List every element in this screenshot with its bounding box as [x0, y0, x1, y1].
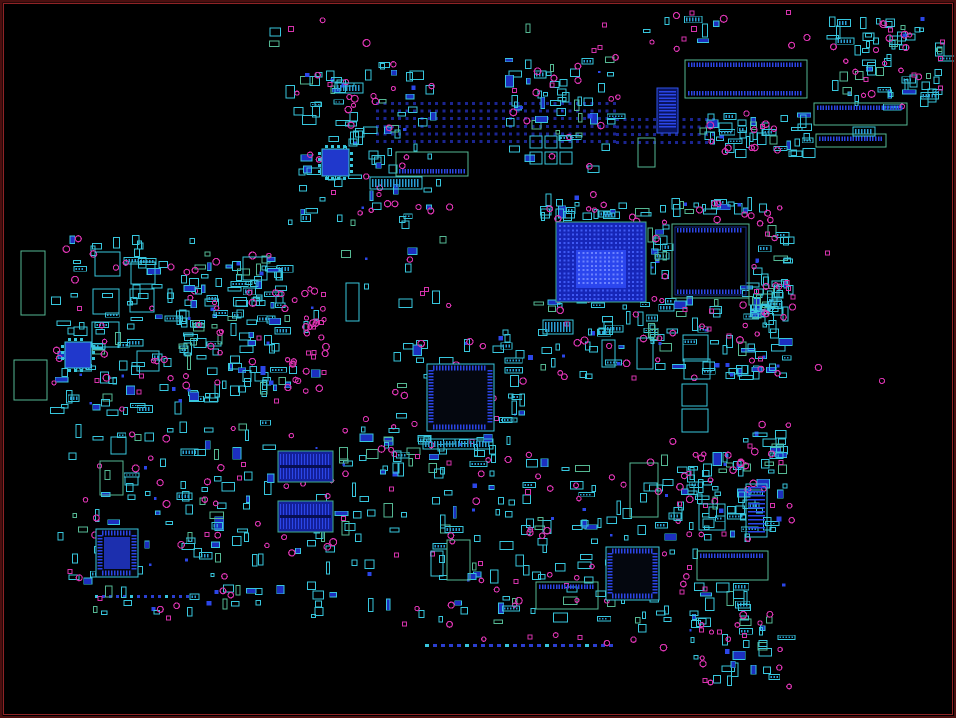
- qfn-left[interactable]: [61, 338, 95, 372]
- qfp-bottom-left[interactable]: [96, 529, 138, 577]
- memory-chip-1[interactable]: [278, 451, 333, 482]
- vertical-connector[interactable]: [657, 88, 678, 133]
- bga-chip[interactable]: [556, 222, 646, 302]
- boardview-canvas[interactable]: [0, 0, 956, 718]
- memory-chip-2[interactable]: [278, 501, 333, 532]
- qfp-center[interactable]: [427, 364, 494, 431]
- qfn-top[interactable]: [318, 145, 353, 180]
- qfp-bottom-right[interactable]: [606, 547, 659, 600]
